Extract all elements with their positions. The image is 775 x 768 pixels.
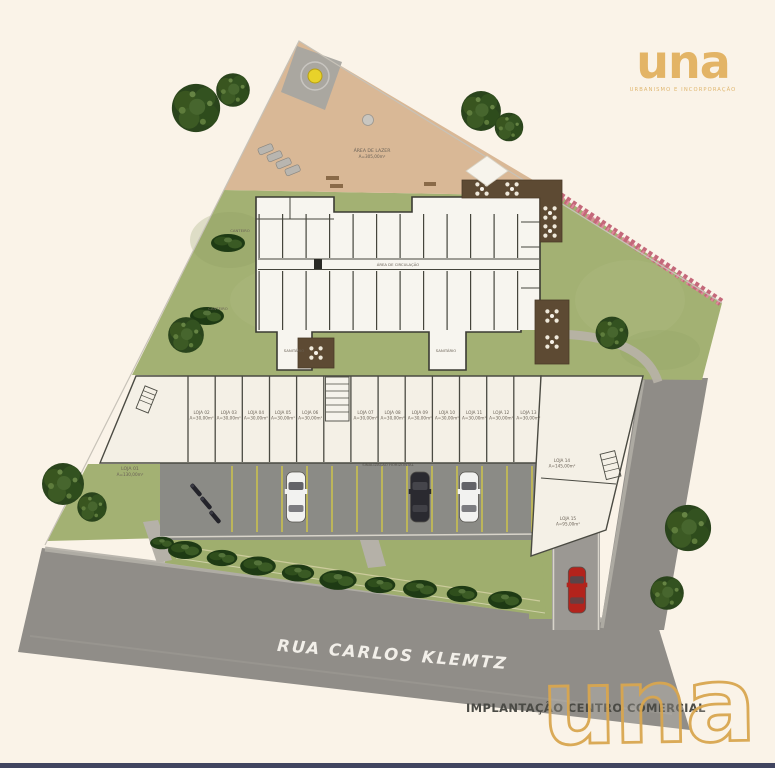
shop-name: LOJA 09	[412, 410, 429, 415]
watermark-logo: una	[541, 643, 754, 768]
shop-name: LOJA 13	[520, 410, 537, 415]
leisure-area: A=305,00m²	[359, 154, 386, 159]
header-logo: una URBANISMO E INCORPORAÇÃO	[630, 35, 737, 93]
shop-area: A=30,00m²	[381, 416, 405, 421]
shop-area: A=30,00m²	[271, 416, 295, 421]
shop-area: A=30,00m²	[244, 416, 268, 421]
header-logo-tagline: URBANISMO E INCORPORAÇÃO	[630, 86, 737, 93]
watermark-logo-text: una	[541, 643, 754, 768]
planting-bed	[211, 234, 245, 252]
parking-label: SINALIZAÇÃO HORIZONTAL	[362, 462, 414, 467]
tree	[596, 317, 629, 350]
leisure-label: ÁREA DE LAZER	[354, 147, 392, 154]
tree	[77, 492, 106, 521]
shop-area: A=95,00m²	[556, 522, 580, 527]
sanitario-label-2: SANITÁRIO	[436, 348, 456, 353]
shop-area: A=30,00m²	[353, 416, 377, 421]
site-plan-page: ÁREA DE LAZER A=305,00m² CANTEIRO CANTEI…	[0, 0, 775, 768]
shop-name: LOJA 12	[493, 410, 510, 415]
dark-car	[409, 472, 431, 522]
red-car	[567, 567, 588, 613]
tree	[216, 73, 250, 107]
canteiro-label-2: CANTEIRO	[208, 306, 228, 311]
round-table	[363, 115, 374, 126]
shop-name: LOJA 05	[275, 410, 292, 415]
shop-name: LOJA 15	[560, 516, 577, 521]
shop-name: LOJA 07	[357, 410, 374, 415]
rooms-upper	[258, 214, 538, 258]
deck-lower	[535, 300, 569, 364]
shaft	[314, 259, 322, 269]
shop-name: LOJA 04	[248, 410, 265, 415]
tree	[172, 84, 220, 132]
shop-name: LOJA 02	[194, 410, 211, 415]
tree	[495, 113, 524, 142]
shop-area: A=30,00m²	[190, 416, 214, 421]
tree	[42, 463, 84, 505]
stair-shops	[326, 377, 350, 421]
tree	[650, 576, 684, 610]
shop-name: LOJA 03	[221, 410, 238, 415]
parking-lot	[160, 462, 545, 540]
tree	[168, 317, 204, 353]
shop-area: A=130,00m²	[117, 472, 144, 477]
shop-area: A=30,00m²	[489, 416, 513, 421]
sanitario-label-1: SANITÁRIO	[284, 348, 304, 353]
shop-area: A=145,00m²	[549, 464, 576, 469]
tree	[665, 505, 711, 551]
bottom-bar	[0, 763, 775, 768]
shop-area: A=30,00m²	[217, 416, 241, 421]
white-car	[285, 472, 307, 522]
shop-area: A=30,00m²	[516, 416, 540, 421]
shop-area: A=30,00m²	[408, 416, 432, 421]
shop-name: LOJA 11	[466, 410, 483, 415]
court-ball-marking	[308, 69, 322, 83]
shop-name: LOJA 08	[385, 410, 402, 415]
shop-area: A=30,00m²	[462, 416, 486, 421]
site-plan-canvas: ÁREA DE LAZER A=305,00m² CANTEIRO CANTEI…	[0, 0, 775, 768]
canteiro-label-1: CANTEIRO	[230, 228, 250, 233]
shop-name: LOJA 06	[302, 410, 319, 415]
white-car	[458, 472, 480, 522]
circulation-label: ÁREA DE CIRCULAÇÃO	[377, 262, 420, 267]
header-logo-text: una	[636, 35, 730, 89]
rooms-lower	[258, 271, 538, 330]
shop-area: A=30,00m²	[435, 416, 459, 421]
shop-name: LOJA 14	[554, 458, 571, 463]
shop-area: A=30,00m²	[298, 416, 322, 421]
shop-name: LOJA 10	[439, 410, 456, 415]
